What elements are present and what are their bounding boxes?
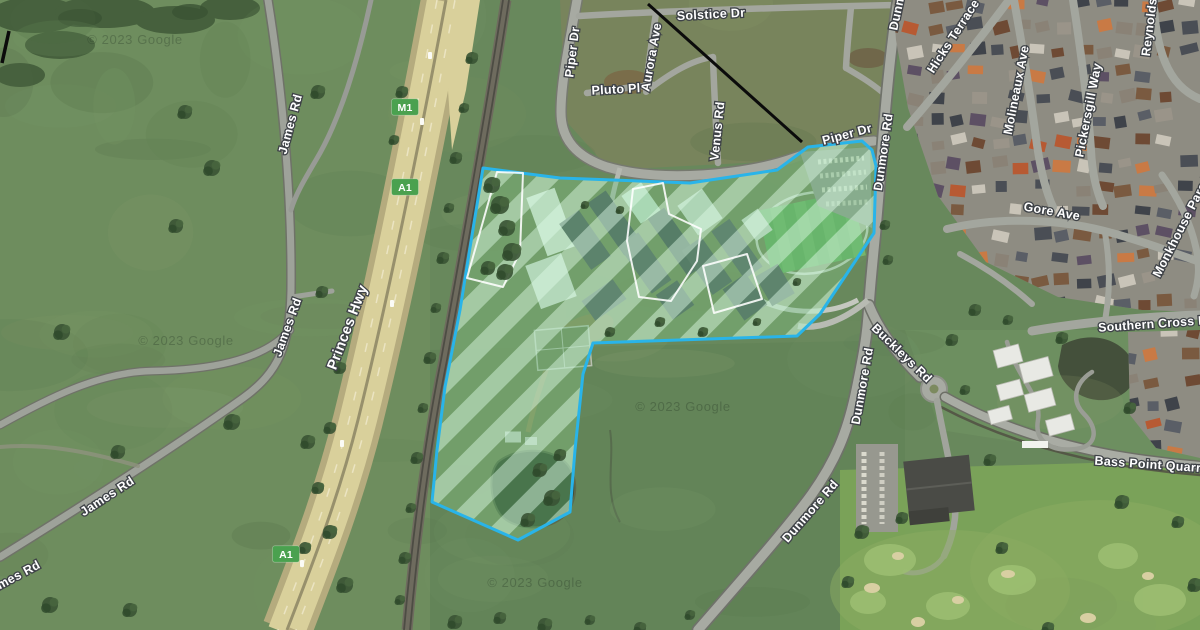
svg-text:M1: M1 xyxy=(398,102,413,114)
svg-text:A1: A1 xyxy=(398,182,412,194)
route-shield: A1 xyxy=(392,179,419,196)
road-label: Pluto Pl xyxy=(591,81,641,98)
google-watermark: © 2023 Google xyxy=(138,333,233,348)
satellite-map-canvas[interactable]: Solstice DrPiper DrAurora AvePluto PlVen… xyxy=(0,0,1200,630)
route-shield: M1 xyxy=(392,99,419,116)
svg-text:A1: A1 xyxy=(279,549,293,561)
map-viewport[interactable]: Solstice DrPiper DrAurora AvePluto PlVen… xyxy=(0,0,1200,630)
google-watermark: © 2023 Google xyxy=(87,32,182,47)
route-shield: A1 xyxy=(273,546,300,563)
google-watermark: © 2023 Google xyxy=(635,399,730,414)
google-watermark: © 2023 Google xyxy=(487,575,582,590)
